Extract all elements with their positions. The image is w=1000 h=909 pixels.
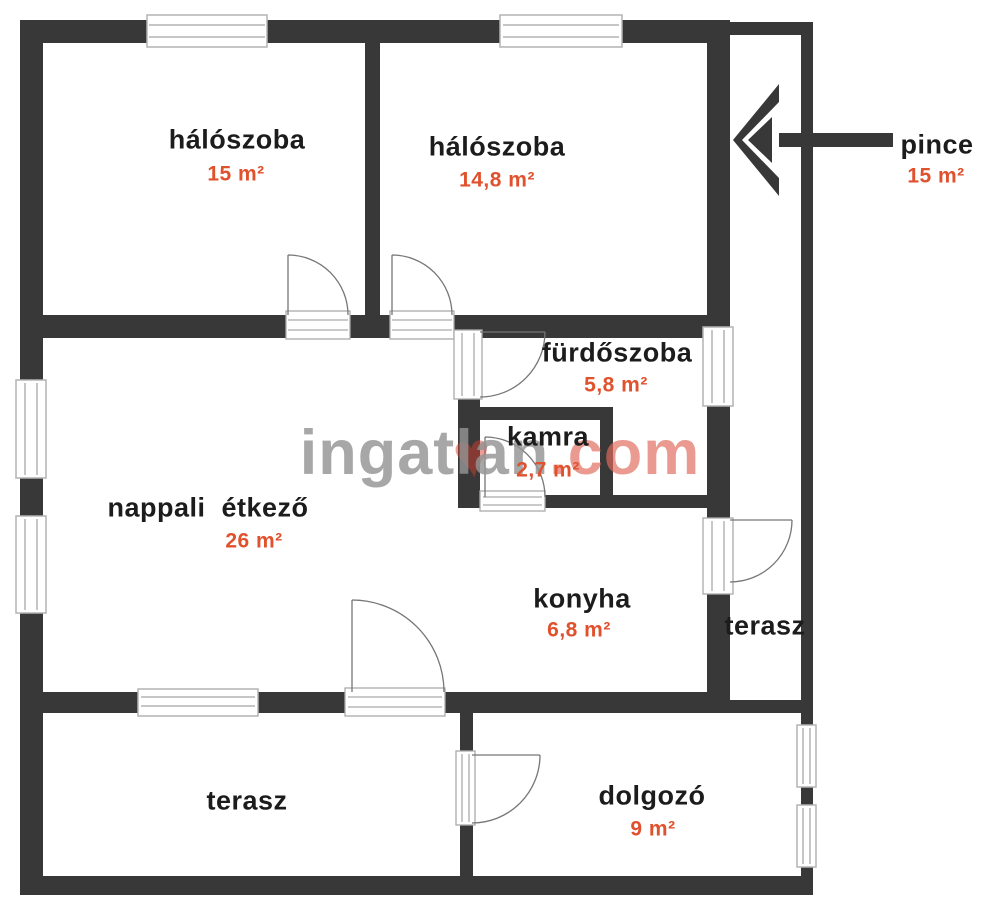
room-area-pince: 15 m² xyxy=(907,166,964,187)
room-name-konyha: konyha xyxy=(533,586,631,613)
window-bathroom-right xyxy=(703,327,733,406)
room-area-nappali-etkezo: 26 m² xyxy=(225,531,282,552)
door-frames xyxy=(286,311,733,825)
room-name-terasz-also: terasz xyxy=(206,788,287,815)
room-name-haloszoba-2: hálószoba xyxy=(429,134,566,161)
window-living-bottom xyxy=(138,689,258,716)
window-bedroom1-top xyxy=(147,15,267,47)
room-name-kamra: kamra xyxy=(507,424,589,451)
room-area-furdoszoba: 5,8 m² xyxy=(584,375,648,396)
window-living-left-1 xyxy=(16,380,46,478)
door-arc-terrace-right xyxy=(730,520,792,582)
window-dolgozo-right-1 xyxy=(797,725,816,787)
door-frame-kamra xyxy=(480,491,545,511)
room-name-haloszoba-1: hálószoba xyxy=(169,127,306,154)
door-frame-bedroom1 xyxy=(286,311,350,339)
room-name-nappali-etkezo: nappali étkező xyxy=(107,495,308,522)
room-area-kamra: 2,7 m² xyxy=(516,460,580,481)
window-symbols xyxy=(16,15,816,867)
walls xyxy=(20,20,813,895)
room-name-dolgozo: dolgozó xyxy=(599,783,706,810)
window-living-left-2 xyxy=(16,516,46,613)
door-arc-living-terrace xyxy=(352,600,444,692)
door-frame-bedroom2 xyxy=(390,311,454,339)
room-name-terasz-jobb: terasz xyxy=(724,613,805,640)
room-area-konyha: 6,8 m² xyxy=(547,620,611,641)
room-area-dolgozo: 9 m² xyxy=(630,819,675,840)
window-bedroom2-top xyxy=(500,15,622,47)
door-arc-bedroom2 xyxy=(392,255,452,315)
door-frame-living-terrace xyxy=(345,688,445,716)
door-arc-bathroom xyxy=(480,332,545,397)
room-area-haloszoba-1: 15 m² xyxy=(207,164,264,185)
door-arc-bedroom1 xyxy=(288,255,348,315)
door-arc-dolgozo xyxy=(472,755,540,823)
room-name-pince: pince xyxy=(900,132,973,159)
window-dolgozo-right-2 xyxy=(797,805,816,867)
door-frame-bathroom xyxy=(454,330,482,399)
room-name-furdoszoba: fürdőszoba xyxy=(542,340,693,367)
door-frame-dolgozo xyxy=(456,751,475,825)
room-area-haloszoba-2: 14,8 m² xyxy=(459,170,535,191)
door-frame-terrace-right xyxy=(703,518,733,594)
floorplan-canvas: ♥ ingatlan.com hálószoba 15 m² hálószoba… xyxy=(0,0,1000,909)
